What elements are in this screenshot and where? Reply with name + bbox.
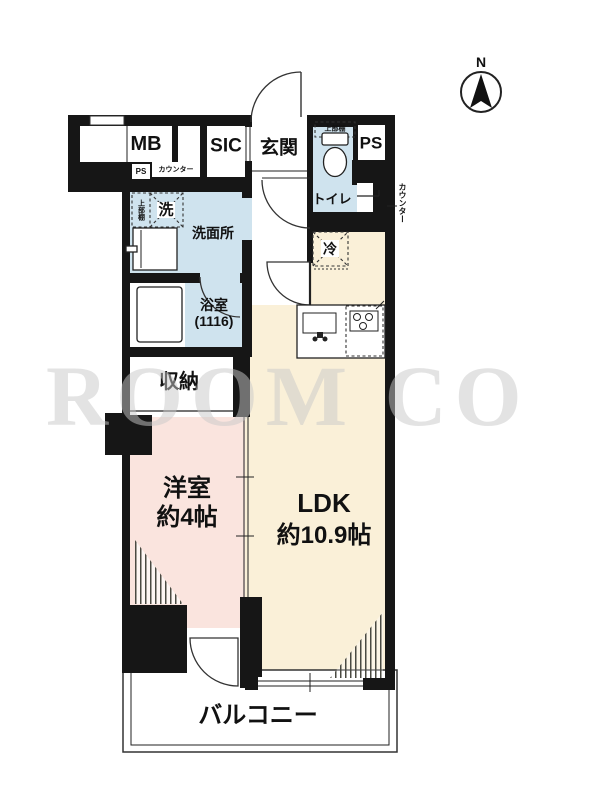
label-counter-top: カウンター	[159, 167, 194, 174]
wall-storage-right	[233, 347, 250, 417]
wall-washroom-right-b	[242, 240, 252, 357]
compass	[461, 72, 501, 112]
label-entrance: 玄関	[260, 139, 298, 158]
floorplan-graphics	[0, 0, 600, 800]
wall-storage-bottom-right	[233, 408, 250, 417]
toilet-bowl-icon	[324, 148, 347, 177]
kitchen-faucet-b	[323, 337, 328, 342]
wall-bath-divider-b	[240, 273, 252, 283]
label-washroom: 洗面所	[192, 226, 234, 240]
wall-block-left	[105, 413, 152, 455]
label-north: N	[476, 55, 486, 69]
label-washer: 洗	[158, 203, 173, 218]
label-storage: 収納	[159, 372, 199, 392]
label-western-room: 洋室	[163, 477, 211, 501]
wall-before-sic	[200, 115, 207, 192]
label-toilet: トイレ	[312, 193, 351, 206]
label-bathroom-size: (1116)	[195, 314, 234, 328]
floorplan-canvas: MB SIC 玄関 PS PS カウンター 上部棚 洗 洗面所 上部棚 トイレ …	[0, 0, 600, 800]
label-sic: SIC	[210, 137, 242, 156]
wall-bath-divider-a	[130, 273, 200, 283]
bathtub-icon	[137, 287, 182, 342]
wall-under-sic	[207, 177, 252, 192]
wall-storage-top	[122, 347, 250, 357]
wall-right-outer	[385, 115, 395, 690]
label-ldk-size: 約10.9帖	[277, 524, 372, 548]
label-toilet-shelf: 上部棚	[325, 126, 346, 133]
label-fridge: 冷	[323, 242, 337, 256]
kitchen-faucet-stem	[317, 332, 323, 338]
label-bathroom: 浴室	[200, 298, 228, 312]
wall-block-bottom-mid	[240, 597, 262, 688]
label-counter-right: カウンター	[398, 183, 406, 223]
label-washer-shelf: 上部棚	[138, 200, 145, 221]
label-ps-small: PS	[136, 168, 147, 176]
wall-toilet-bottom	[313, 212, 395, 232]
vanity-icon	[133, 228, 177, 270]
label-mb: MB	[130, 134, 161, 154]
vanity-handle	[126, 246, 137, 252]
kitchen-faucet-a	[313, 337, 318, 342]
label-western-room-size: 約4帖	[156, 506, 217, 530]
wall-hall-toilet	[307, 115, 313, 263]
label-balcony: バルコニー	[198, 704, 318, 728]
wall-washroom-right-a	[242, 192, 252, 198]
window-slot-top	[90, 116, 124, 125]
toilet-tank-icon	[322, 133, 348, 145]
wall-ldk-bottom-right	[363, 678, 395, 690]
wall-ldk-bottom-left	[245, 678, 258, 690]
wall-block-bottom-left	[122, 605, 187, 673]
counter-alcove	[357, 183, 373, 212]
label-ldk: LDK	[297, 490, 350, 516]
label-ps-main: PS	[360, 135, 383, 152]
